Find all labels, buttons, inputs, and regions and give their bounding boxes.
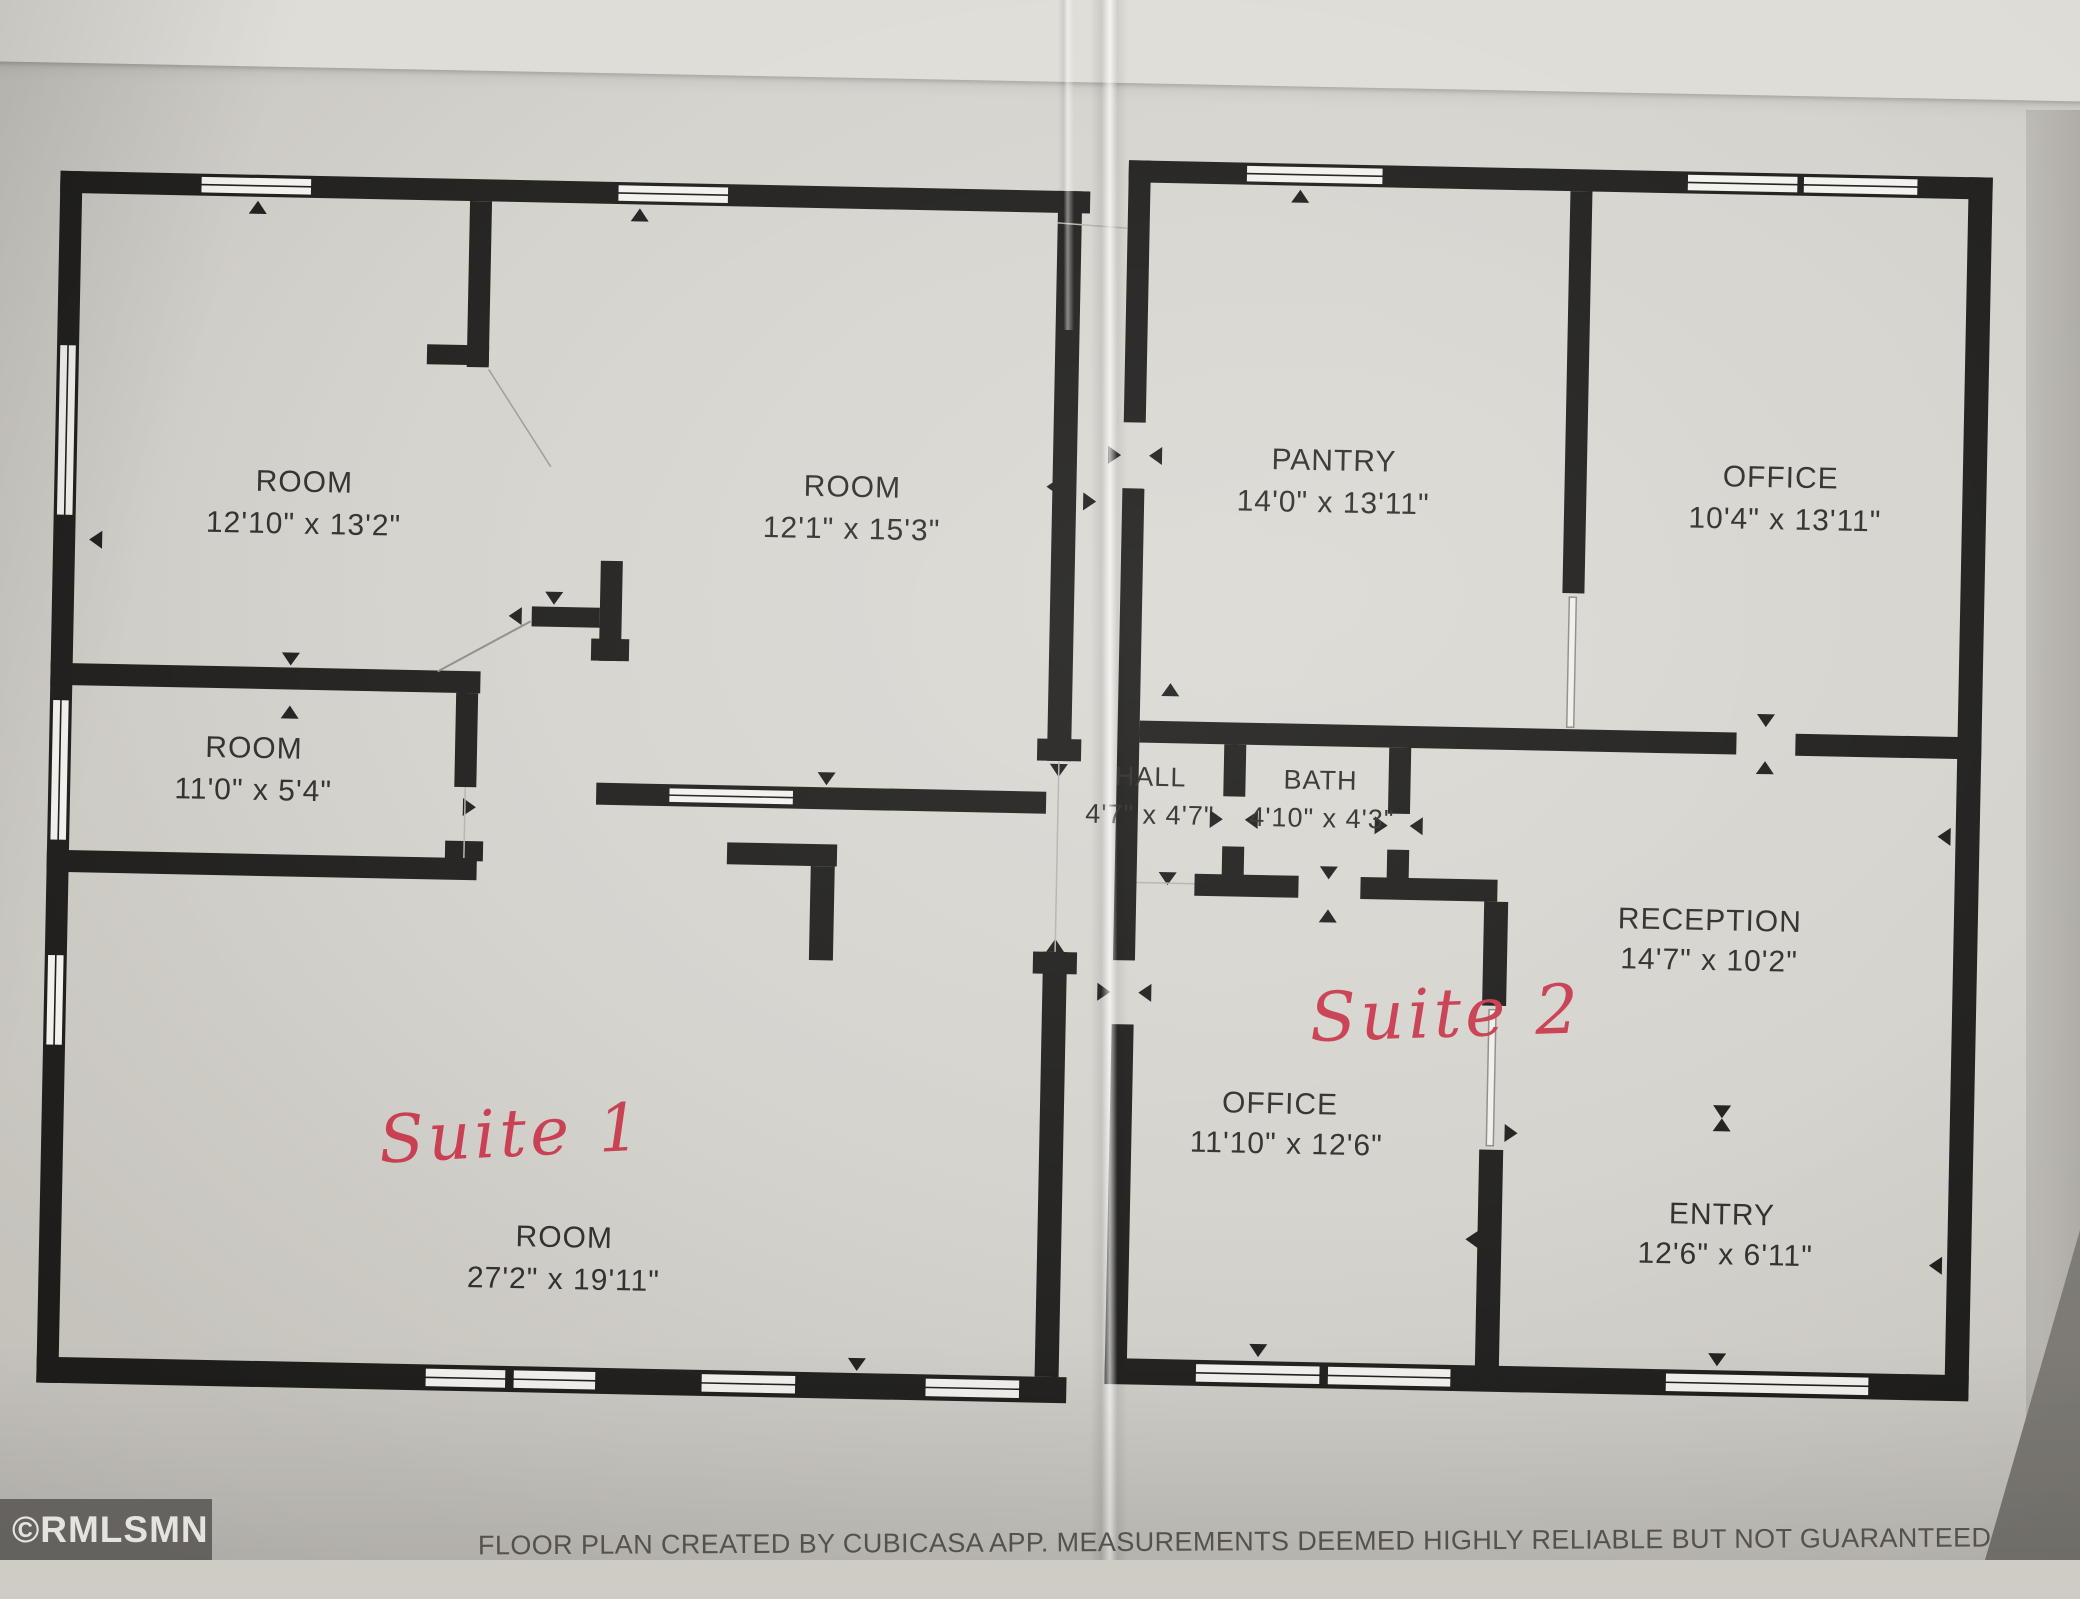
room-label-s2-hall-name: HALL [1115, 761, 1187, 792]
room-label-s2-entry-name: ENTRY [1669, 1197, 1776, 1232]
room-label-s2-office-top-dims: 10'4" x 13'11" [1688, 502, 1882, 539]
room-label-s1-room-b-name: ROOM [803, 470, 901, 505]
room-label-s1-room-d-dims: 27'2" x 19'11" [467, 1261, 661, 1298]
suite2-walls [1104, 160, 1992, 1401]
room-label-s1-room-c-name: ROOM [205, 731, 303, 766]
room-label-s1-room-a-name: ROOM [255, 465, 353, 500]
room-label-s1-room-c-dims: 11'0" x 5'4" [174, 772, 332, 808]
room-label-s1-room-a-dims: 12'10" x 13'2" [206, 506, 402, 543]
room-label-s2-pantry-dims: 14'0" x 13'11" [1236, 484, 1430, 521]
room-label-s2-reception-name: RECEPTION [1618, 902, 1803, 939]
room-label-s2-pantry-name: PANTRY [1271, 443, 1397, 479]
floor-plan-svg: ROOM 12'10" x 13'2" ROOM 12'1" x 15'3" R… [0, 0, 2080, 1599]
room-label-s2-bath-dims: 4'10" x 4'3" [1249, 802, 1395, 835]
floor-plan-photo: ROOM 12'10" x 13'2" ROOM 12'1" x 15'3" R… [0, 0, 2080, 1560]
room-label-s2-office-top-name: OFFICE [1722, 460, 1839, 495]
room-label-s2-bath-name: BATH [1283, 764, 1358, 795]
room-label-s2-hall-dims: 4'7" x 4'7" [1085, 799, 1215, 832]
room-label-s2-office-bottom-dims: 11'10" x 12'6" [1189, 1126, 1383, 1163]
room-label-s2-entry-dims: 12'6" x 6'11" [1637, 1237, 1813, 1274]
suite2-handwritten-label: Suite 2 [1308, 970, 1583, 1058]
watermark-text: ©RMLSMN [12, 1509, 209, 1551]
watermark-badge: ©RMLSMN [0, 1499, 212, 1560]
room-label-s2-reception-dims: 14'7" x 10'2" [1620, 942, 1798, 979]
room-label-s1-room-b-dims: 12'1" x 15'3" [762, 511, 940, 548]
room-label-s1-room-d-name: ROOM [515, 1220, 613, 1255]
suite1-handwritten-label: Suite 1 [377, 1088, 646, 1178]
room-label-s2-office-bottom-name: OFFICE [1222, 1086, 1339, 1121]
